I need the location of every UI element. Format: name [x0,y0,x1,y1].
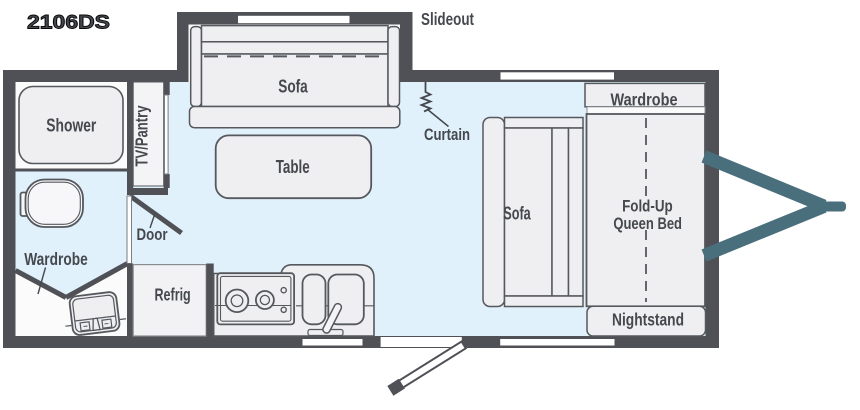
svg-text:Door: Door [137,225,168,244]
svg-text:Wardrobe: Wardrobe [611,89,678,109]
svg-text:Wardrobe: Wardrobe [24,249,88,269]
svg-text:Refrig: Refrig [155,284,191,304]
svg-text:Queen Bed: Queen Bed [613,214,682,233]
svg-text:Nightstand: Nightstand [612,310,684,330]
svg-text:Table: Table [276,157,310,177]
svg-text:TV/Pantry: TV/Pantry [132,105,152,166]
svg-text:Shower: Shower [46,116,96,136]
svg-text:2106DS: 2106DS [27,12,110,33]
svg-text:Slideout: Slideout [421,9,474,29]
svg-text:Sofa: Sofa [503,204,531,224]
svg-text:Curtain: Curtain [424,125,470,144]
svg-text:Sofa: Sofa [278,77,308,97]
svg-text:Fold-Up: Fold-Up [622,196,673,215]
